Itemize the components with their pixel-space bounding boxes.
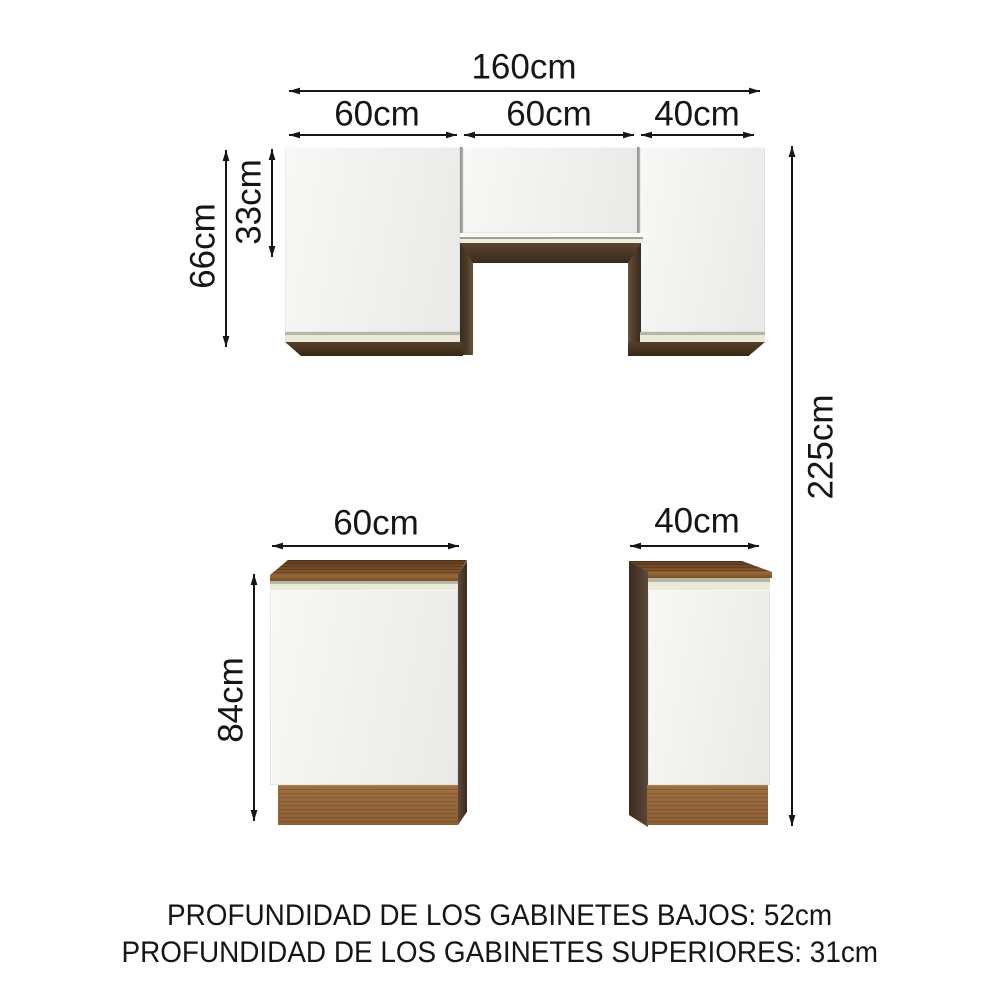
label-total-width: 160cm (471, 50, 576, 85)
footer-depth-base-text: PROFUNDIDAD DE LOS GABINETES BAJOS: 52cm (167, 898, 832, 934)
label-lower-height: 84cm (214, 657, 249, 743)
footer-depth-base: PROFUNDIDAD DE LOS GABINETES BAJOS: 52cm (0, 898, 1000, 934)
label-upper-left-width: 60cm (334, 97, 420, 132)
footer-depth-upper-text: PROFUNDIDAD DE LOS GABINETES SUPERIORES:… (122, 935, 879, 971)
label-lower-left-width: 60cm (333, 506, 419, 541)
label-upper-height: 66cm (186, 203, 221, 289)
label-upper-middle-height: 33cm (232, 159, 267, 245)
label-upper-right-width: 40cm (654, 97, 740, 132)
label-lower-right-width: 40cm (654, 504, 740, 539)
label-upper-middle-width: 60cm (506, 97, 592, 132)
kitchen-dimensions-diagram: 160cm 60cm 60cm 40cm 66cm 33cm 225cm 60c… (0, 0, 1000, 1000)
footer-depth-upper: PROFUNDIDAD DE LOS GABINETES SUPERIORES:… (0, 935, 1000, 971)
dimension-arrows (0, 0, 1000, 1000)
label-total-height: 225cm (804, 394, 839, 499)
